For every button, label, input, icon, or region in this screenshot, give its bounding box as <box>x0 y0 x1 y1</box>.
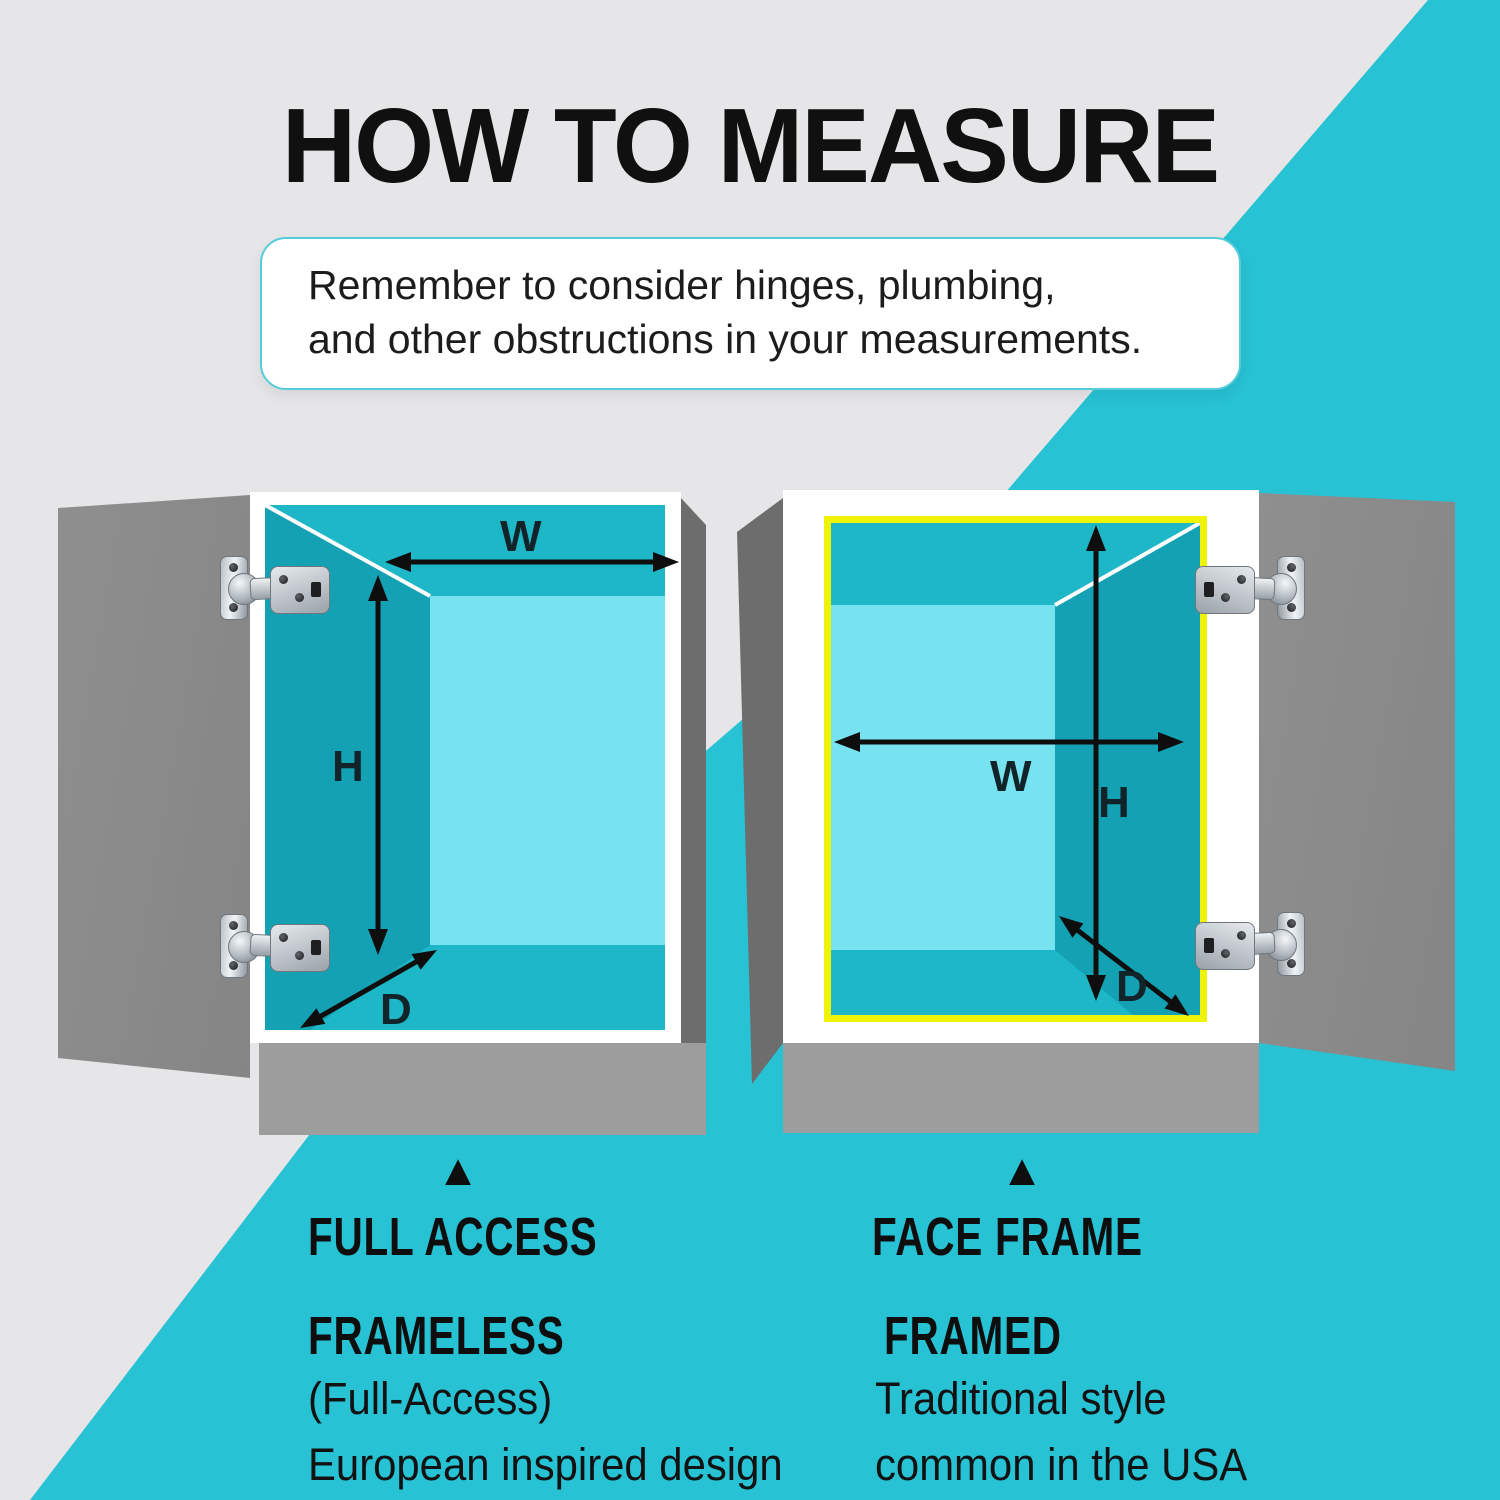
left-caption-line2: European inspired design <box>308 1439 783 1491</box>
left-height-label: H <box>332 742 364 792</box>
hinge-cabinet-plate <box>1195 566 1255 614</box>
hinge-cabinet-plate <box>1195 922 1255 970</box>
left-caption-line1: (Full-Access) <box>308 1373 552 1425</box>
right-depth-label: D <box>1116 962 1148 1012</box>
left-heading: FULL ACCESS <box>308 1206 598 1268</box>
up-triangle-icon: ▲ <box>872 1149 1172 1193</box>
left-subheading: FRAMELESS <box>308 1305 565 1367</box>
note-box <box>260 237 1241 390</box>
left-top-hinge-illustration <box>220 556 330 622</box>
page-title: HOW TO MEASURE <box>23 86 1478 207</box>
hinge-cabinet-plate <box>270 924 330 972</box>
height-arrow <box>368 575 388 955</box>
right-bottom-hinge-illustration <box>1195 912 1305 978</box>
right-caption-line1: Traditional style <box>875 1373 1167 1425</box>
right-top-hinge-illustration <box>1195 556 1305 622</box>
left-cabinet-toe-kick-base <box>259 1043 706 1135</box>
right-heading: FACE FRAME <box>872 1206 1143 1268</box>
right-height-label: H <box>1098 778 1130 828</box>
width-arrow <box>834 732 1184 752</box>
up-triangle-icon: ▲ <box>308 1149 608 1193</box>
right-caption-line2: common in the USA <box>875 1439 1247 1491</box>
left-bottom-hinge-illustration <box>220 914 330 980</box>
right-cabinet-toe-kick-base <box>783 1043 1259 1133</box>
right-width-label: W <box>990 752 1032 802</box>
note-text-line2: and other obstructions in your measureme… <box>308 316 1208 363</box>
note-text-line1: Remember to consider hinges, plumbing, <box>308 262 1208 309</box>
hinge-cabinet-plate <box>270 566 330 614</box>
left-depth-label: D <box>380 985 412 1035</box>
right-subheading: FRAMED <box>884 1305 1062 1367</box>
left-width-label: W <box>500 512 542 562</box>
height-arrow <box>1086 525 1106 1001</box>
